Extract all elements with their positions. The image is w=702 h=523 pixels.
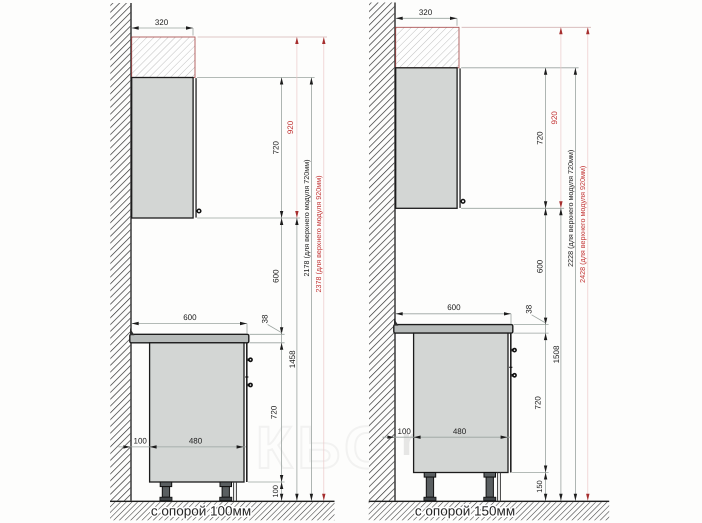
svg-text:600: 600 <box>447 303 461 312</box>
svg-text:920: 920 <box>286 120 295 134</box>
svg-text:600: 600 <box>183 313 197 322</box>
svg-text:320: 320 <box>155 18 169 27</box>
svg-text:38: 38 <box>525 304 534 313</box>
svg-text:720: 720 <box>269 405 278 419</box>
svg-text:2378 (для верхнего модуля 920м: 2378 (для верхнего модуля 920мм) <box>314 175 323 292</box>
svg-text:2228 (для верхнего модуля 720м: 2228 (для верхнего модуля 720мм) <box>566 150 575 267</box>
svg-text:100: 100 <box>271 485 280 498</box>
svg-text:920: 920 <box>550 111 559 125</box>
svg-text:720: 720 <box>533 396 542 410</box>
svg-text:480: 480 <box>453 427 467 436</box>
svg-text:600: 600 <box>271 269 280 283</box>
svg-text:600: 600 <box>535 259 544 273</box>
svg-text:480: 480 <box>189 437 203 446</box>
svg-text:2428 (для верхнего модуля 920м: 2428 (для верхнего модуля 920мм) <box>578 166 587 283</box>
svg-text:720: 720 <box>271 141 280 155</box>
svg-text:320: 320 <box>419 8 433 17</box>
svg-text:1508: 1508 <box>552 345 561 363</box>
svg-text:с опорой 150мм: с опорой 150мм <box>415 503 515 518</box>
svg-text:с опорой 100мм: с опорой 100мм <box>151 503 251 518</box>
svg-text:38: 38 <box>261 314 270 323</box>
svg-text:720: 720 <box>535 131 544 145</box>
svg-text:100: 100 <box>398 427 412 436</box>
svg-text:150: 150 <box>535 480 544 493</box>
svg-text:100: 100 <box>134 437 148 446</box>
svg-text:2178 (для верхнего модуля 720м: 2178 (для верхнего модуля 720мм) <box>302 159 311 276</box>
svg-text:1458: 1458 <box>288 350 297 368</box>
